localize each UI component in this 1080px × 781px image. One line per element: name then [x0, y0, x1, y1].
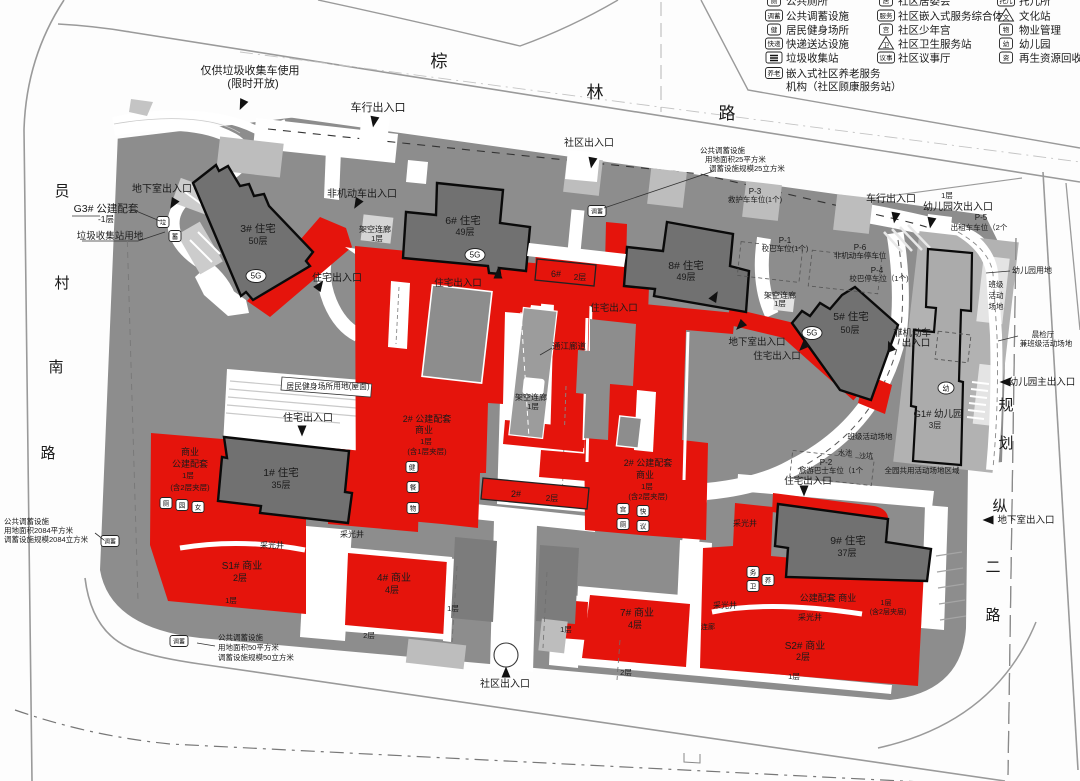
svg-text:议: 议: [640, 522, 647, 530]
svg-text:社区出入口: 社区出入口: [564, 136, 614, 149]
svg-text:采光井: 采光井: [260, 540, 284, 550]
svg-text:公共厕所: 公共厕所: [786, 0, 828, 7]
svg-text:6# 住宅: 6# 住宅: [445, 214, 481, 227]
svg-text:规: 规: [998, 397, 1013, 414]
svg-text:快递: 快递: [768, 39, 782, 48]
svg-text:架空连廊: 架空连廊: [359, 224, 391, 234]
svg-text:公建配套 商业: 公建配套 商业: [800, 592, 857, 603]
svg-text:公建配套: 公建配套: [172, 458, 208, 469]
svg-text:非机动车停车位: 非机动车停车位: [834, 250, 887, 260]
svg-text:快递送达设施: 快递送达设施: [786, 37, 849, 50]
svg-text:垃圾收集站用地: 垃圾收集站用地: [77, 230, 144, 242]
svg-text:调蓄设施规模50立方米: 调蓄设施规模50立方米: [218, 652, 294, 662]
svg-text:棕: 棕: [431, 52, 448, 71]
svg-text:用地面积2084平方米: 用地面积2084平方米: [4, 525, 74, 535]
svg-text:住宅出入口: 住宅出入口: [784, 475, 832, 487]
svg-text:幼儿园主出入口: 幼儿园主出入口: [1009, 376, 1076, 388]
svg-text:1层: 1层: [371, 234, 383, 243]
svg-text:(含2层夹层): (含2层夹层): [628, 491, 668, 501]
svg-text:49层: 49层: [676, 272, 695, 282]
svg-text:旅游巴士车位（1个: 旅游巴士车位（1个: [799, 465, 864, 475]
svg-text:1层: 1层: [641, 482, 653, 491]
svg-text:沙坑: 沙坑: [859, 451, 873, 460]
svg-text:6#: 6#: [551, 269, 561, 279]
svg-text:商业: 商业: [415, 424, 433, 435]
svg-text:仅供垃圾收集车使用: 仅供垃圾收集车使用: [201, 63, 300, 77]
svg-text:5G: 5G: [251, 272, 262, 281]
svg-text:S1# 商业: S1# 商业: [222, 559, 263, 572]
svg-text:1层: 1层: [182, 471, 194, 480]
svg-text:1层: 1层: [560, 625, 572, 634]
svg-text:1层: 1层: [941, 191, 953, 200]
svg-text:议事: 议事: [880, 53, 894, 62]
svg-text:2层: 2层: [620, 668, 632, 677]
svg-text:-1层: -1层: [98, 214, 114, 224]
svg-text:居民健身场所: 居民健身场所: [786, 23, 849, 36]
svg-text:G1# 幼儿园: G1# 幼儿园: [913, 408, 962, 420]
svg-text:(含2层夹层): (含2层夹层): [870, 607, 907, 616]
svg-text:2# 公建配套: 2# 公建配套: [403, 413, 452, 424]
svg-text:幼: 幼: [943, 384, 950, 393]
svg-text:机构（社区顾康服务站）: 机构（社区顾康服务站）: [786, 80, 902, 93]
svg-text:物: 物: [1003, 25, 1010, 34]
svg-text:幼儿园: 幼儿园: [1019, 37, 1051, 50]
svg-text:垃圾收集站: 垃圾收集站: [786, 51, 839, 64]
svg-text:厕: 厕: [771, 0, 778, 5]
svg-text:养老: 养老: [768, 68, 782, 77]
svg-text:2层: 2层: [796, 652, 810, 662]
svg-text:地下室出入口: 地下室出入口: [728, 336, 785, 348]
svg-text:幼: 幼: [1003, 39, 1010, 48]
svg-text:班级活动场地: 班级活动场地: [848, 431, 893, 441]
svg-text:住宅出入口: 住宅出入口: [434, 277, 482, 289]
svg-text:(限时开放): (限时开放): [227, 76, 278, 90]
svg-text:女: 女: [195, 502, 202, 511]
svg-text:垃: 垃: [160, 217, 167, 226]
svg-text:2层: 2层: [546, 494, 558, 503]
svg-text:车行出入口: 车行出入口: [866, 192, 916, 205]
svg-text:1层: 1层: [788, 672, 800, 681]
svg-text:活动: 活动: [989, 290, 1004, 300]
svg-text:幼儿园次出入口: 幼儿园次出入口: [923, 200, 993, 213]
svg-text:2层: 2层: [363, 631, 375, 640]
svg-text:晨检厅: 晨检厅: [1032, 329, 1055, 339]
svg-text:南: 南: [48, 359, 63, 376]
svg-text:地下室出入口: 地下室出入口: [132, 182, 192, 195]
svg-text:全园共用活动场地区域: 全园共用活动场地区域: [885, 465, 960, 475]
svg-text:S2# 商业: S2# 商业: [785, 639, 826, 652]
svg-text:救护车车位(1个): 救护车车位(1个): [728, 194, 783, 204]
svg-text:2层: 2层: [233, 573, 247, 583]
svg-text:1层: 1层: [881, 599, 892, 607]
svg-text:物: 物: [410, 503, 417, 512]
svg-text:卫: 卫: [750, 582, 757, 590]
svg-text:水池: 水池: [838, 448, 852, 457]
svg-text:采光井: 采光井: [798, 612, 822, 622]
svg-text:2层: 2层: [574, 273, 586, 282]
svg-text:村: 村: [54, 275, 69, 292]
svg-text:通江廊道: 通江廊道: [552, 341, 587, 351]
svg-text:采光井: 采光井: [340, 529, 364, 539]
svg-text:4层: 4层: [385, 585, 399, 595]
svg-text:5G: 5G: [807, 329, 818, 338]
svg-text:社区嵌入式服务综合体: 社区嵌入式服务综合体: [898, 9, 1003, 22]
svg-text:托儿所: 托儿所: [1019, 0, 1051, 7]
svg-text:1层: 1层: [225, 596, 237, 605]
svg-text:托儿: 托儿: [1000, 0, 1014, 5]
svg-text:资: 资: [1003, 53, 1010, 62]
svg-text:用地面积50平方米: 用地面积50平方米: [218, 642, 279, 652]
svg-text:公共调蓄设施: 公共调蓄设施: [786, 9, 849, 22]
svg-text:纵: 纵: [992, 498, 1007, 515]
svg-text:P-5: P-5: [975, 213, 988, 222]
svg-text:务: 务: [750, 567, 757, 576]
svg-text:班级: 班级: [989, 279, 1004, 289]
svg-text:1层: 1层: [447, 604, 459, 613]
svg-text:调蓄设施规模25立方米: 调蓄设施规模25立方米: [709, 163, 785, 173]
svg-text:采光井: 采光井: [713, 600, 737, 610]
svg-text:住宅出入口: 住宅出入口: [283, 411, 333, 424]
svg-text:健: 健: [409, 462, 416, 471]
svg-text:50层: 50层: [248, 236, 267, 246]
svg-text:公共调蓄设施: 公共调蓄设施: [4, 516, 49, 526]
svg-text:2#: 2#: [511, 489, 521, 499]
svg-text:地下室出入口: 地下室出入口: [997, 514, 1054, 526]
svg-text:餐: 餐: [410, 482, 417, 491]
svg-text:35层: 35层: [271, 480, 290, 490]
svg-text:连廊: 连廊: [701, 622, 715, 631]
svg-text:快: 快: [640, 506, 647, 515]
svg-text:幼儿园用地: 幼儿园用地: [1012, 265, 1052, 275]
svg-text:公共调蓄设施: 公共调蓄设施: [700, 145, 745, 155]
svg-text:(含1层夹层): (含1层夹层): [407, 446, 447, 456]
svg-text:用地面积25平方米: 用地面积25平方米: [705, 154, 766, 164]
svg-text:调蓄: 调蓄: [591, 207, 603, 215]
svg-text:社区卫生服务站: 社区卫生服务站: [898, 37, 972, 50]
svg-text:4# 商业: 4# 商业: [377, 571, 411, 584]
svg-text:兼班级活动场地: 兼班级活动场地: [1020, 338, 1073, 348]
svg-text:调蓄设施规模2084立方米: 调蓄设施规模2084立方米: [4, 534, 89, 544]
svg-text:社区少年宫: 社区少年宫: [898, 23, 951, 36]
svg-text:3层: 3层: [929, 421, 941, 430]
svg-text:调蓄: 调蓄: [768, 11, 782, 20]
svg-text:社区议事厅: 社区议事厅: [898, 51, 951, 64]
svg-text:住宅出入口: 住宅出入口: [590, 302, 638, 314]
svg-text:校巴停车位（1个): 校巴停车位（1个): [849, 273, 909, 283]
svg-text:住宅出入口: 住宅出入口: [753, 350, 801, 362]
svg-text:公共调蓄设施: 公共调蓄设施: [218, 632, 263, 642]
svg-text:调蓄: 调蓄: [104, 537, 116, 545]
svg-text:采光井: 采光井: [733, 518, 757, 528]
svg-text:校巴车位(1个): 校巴车位(1个): [762, 243, 809, 253]
svg-text:4层: 4层: [628, 620, 642, 630]
svg-text:健: 健: [771, 25, 778, 34]
svg-text:出入口: 出入口: [902, 337, 931, 349]
svg-text:1层: 1层: [774, 299, 786, 308]
svg-text:商业: 商业: [636, 469, 654, 480]
svg-text:林: 林: [587, 83, 604, 102]
svg-text:社区居委会: 社区居委会: [898, 0, 951, 7]
svg-text:5G: 5G: [470, 251, 481, 260]
svg-text:非机动车出入口: 非机动车出入口: [327, 187, 397, 200]
svg-text:路: 路: [719, 104, 736, 123]
svg-text:(含2层夹层): (含2层夹层): [170, 482, 210, 492]
svg-text:物业管理: 物业管理: [1019, 23, 1061, 36]
svg-text:1层: 1层: [420, 437, 432, 446]
svg-text:宫: 宫: [620, 504, 627, 513]
svg-text:调蓄: 调蓄: [173, 637, 185, 645]
svg-text:37层: 37层: [837, 548, 856, 558]
svg-text:50层: 50层: [840, 325, 859, 335]
svg-text:3# 住宅: 3# 住宅: [240, 222, 276, 235]
svg-text:厕: 厕: [163, 499, 170, 507]
svg-text:划: 划: [998, 435, 1013, 452]
svg-text:住宅出入口: 住宅出入口: [312, 271, 362, 284]
svg-text:1层: 1层: [527, 402, 539, 411]
svg-text:2# 公建配套: 2# 公建配套: [624, 457, 673, 468]
svg-text:卫: 卫: [883, 42, 890, 50]
svg-text:服务: 服务: [880, 11, 894, 20]
svg-text:文: 文: [1003, 13, 1010, 22]
svg-text:9# 住宅: 9# 住宅: [830, 534, 866, 547]
svg-text:居: 居: [883, 0, 890, 5]
svg-text:厕: 厕: [620, 520, 627, 528]
svg-text:路: 路: [985, 607, 1000, 624]
svg-text:场地: 场地: [989, 301, 1004, 311]
svg-text:文化站: 文化站: [1019, 9, 1051, 22]
svg-text:1# 住宅: 1# 住宅: [263, 466, 299, 479]
svg-text:商业: 商业: [181, 446, 199, 457]
svg-text:蓄: 蓄: [172, 231, 179, 240]
svg-text:架空连廊: 架空连廊: [515, 392, 547, 402]
svg-text:7# 商业: 7# 商业: [620, 606, 654, 619]
svg-text:宫: 宫: [883, 25, 890, 34]
svg-text:5# 住宅: 5# 住宅: [833, 310, 869, 323]
svg-text:路: 路: [40, 445, 55, 462]
svg-text:员: 员: [54, 183, 69, 200]
svg-text:49层: 49层: [455, 227, 474, 237]
svg-text:居民健身场所用地(屋面): 居民健身场所用地(屋面): [286, 381, 370, 391]
svg-text:8# 住宅: 8# 住宅: [668, 259, 704, 272]
svg-text:车行出入口: 车行出入口: [351, 100, 406, 114]
svg-text:嵌入式社区养老服务: 嵌入式社区养老服务: [786, 67, 881, 80]
svg-text:社区出入口: 社区出入口: [480, 677, 530, 690]
svg-text:再生资源回收: 再生资源回收: [1019, 51, 1080, 64]
svg-text:园: 园: [179, 501, 186, 509]
svg-text:出租车车位（2个: 出租车车位（2个: [951, 222, 1008, 232]
svg-text:二: 二: [985, 559, 1000, 576]
svg-text:养: 养: [765, 575, 772, 584]
